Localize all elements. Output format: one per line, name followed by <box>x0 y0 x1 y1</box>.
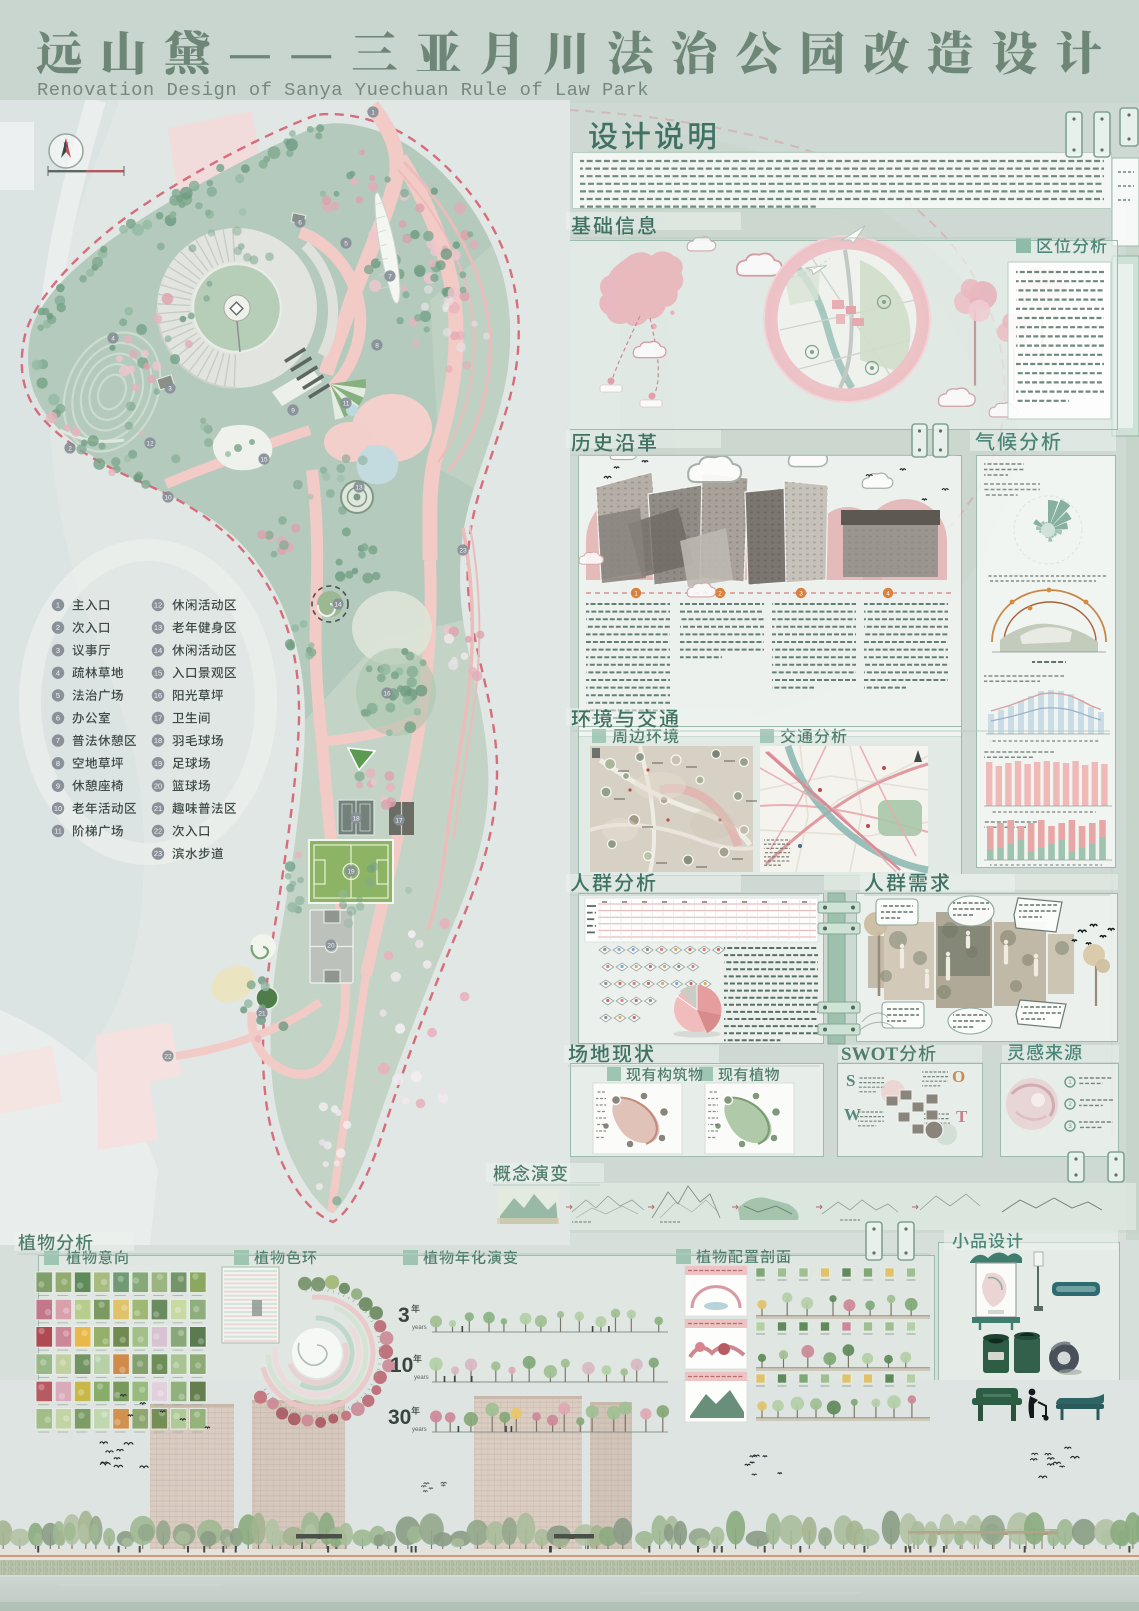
svg-text:9: 9 <box>56 781 60 790</box>
svg-text:14: 14 <box>154 646 162 655</box>
svg-text:SWOT: SWOT <box>841 1044 898 1065</box>
svg-text:2: 2 <box>56 623 60 632</box>
svg-text:23: 23 <box>154 849 162 858</box>
svg-text:7: 7 <box>56 736 60 745</box>
svg-text:8: 8 <box>56 759 60 768</box>
svg-text:6: 6 <box>56 714 60 723</box>
svg-text:20: 20 <box>154 781 162 790</box>
svg-text:10: 10 <box>54 804 62 813</box>
svg-text:11: 11 <box>54 827 62 836</box>
svg-text:16: 16 <box>154 691 162 700</box>
svg-text:4: 4 <box>56 668 60 677</box>
svg-text:19: 19 <box>154 759 162 768</box>
svg-text:13: 13 <box>154 623 162 632</box>
svg-text:15: 15 <box>154 668 162 677</box>
svg-text:17: 17 <box>154 714 162 723</box>
svg-text:22: 22 <box>154 827 162 836</box>
svg-text:Renovation Design of Sanya Yue: Renovation Design of Sanya Yuechuan Rule… <box>37 79 649 101</box>
svg-text:3: 3 <box>56 646 60 655</box>
svg-text:21: 21 <box>154 804 162 813</box>
svg-text:18: 18 <box>154 736 162 745</box>
svg-text:5: 5 <box>56 691 60 700</box>
svg-text:12: 12 <box>154 601 162 610</box>
svg-text:1: 1 <box>56 601 60 610</box>
